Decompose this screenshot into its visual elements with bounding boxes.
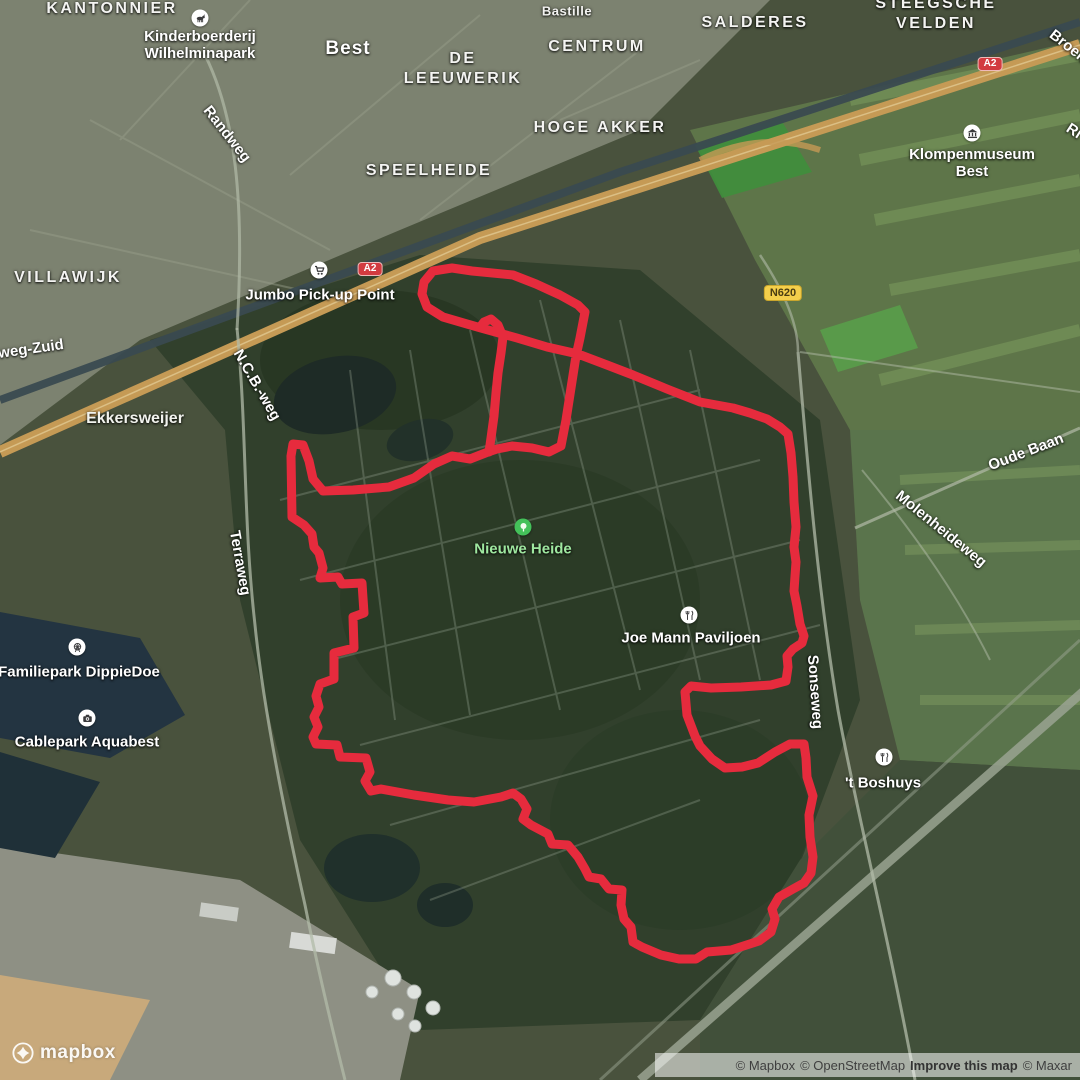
poi-label-joe-mann-paviljoen: Joe Mann Paviljoen bbox=[621, 629, 760, 646]
camera-icon bbox=[81, 712, 93, 724]
poi-marker-klompenmuseum-best[interactable] bbox=[964, 125, 981, 142]
area-label-villawijk: VILLAWIJK bbox=[14, 268, 122, 288]
map-labels-layer: KANTONNIERBestBastilleCENTRUMDELEEUWERIK… bbox=[0, 0, 1080, 1080]
poi-marker-cablepark-aquabest[interactable] bbox=[79, 710, 96, 727]
museum-icon bbox=[966, 127, 978, 139]
mapbox-logo[interactable]: mapbox bbox=[12, 1042, 116, 1064]
area-label-best: Best bbox=[325, 38, 370, 60]
poi-marker-familiepark-dippiedoe[interactable] bbox=[69, 639, 86, 656]
attribution-maxar: © Maxar bbox=[1023, 1058, 1072, 1073]
restaurant-icon bbox=[878, 751, 890, 763]
area-label-de-leeuwerik: DELEEUWERIK bbox=[404, 49, 523, 89]
poi-label-t-boshuys: 't Boshuys bbox=[845, 774, 921, 791]
poi-marker-kinderboerderij-wilhelminapark[interactable] bbox=[192, 10, 209, 27]
area-label-bastille: Bastille bbox=[542, 4, 592, 19]
a2-shield-east: A2 bbox=[978, 57, 1003, 71]
road-label-randweg: Randweg bbox=[200, 102, 254, 165]
poi-label-nieuwe-heide: Nieuwe Heide bbox=[474, 540, 572, 557]
poi-marker-joe-mann-paviljoen[interactable] bbox=[681, 607, 698, 624]
road-label-broek: Broek bbox=[1046, 26, 1080, 66]
road-label-sonseweg: Sonseweg bbox=[804, 654, 826, 729]
map-canvas[interactable]: KANTONNIERBestBastilleCENTRUMDELEEUWERIK… bbox=[0, 0, 1080, 1080]
attribution-mapbox-link[interactable]: © Mapbox bbox=[736, 1058, 795, 1073]
a2-shield-west: A2 bbox=[358, 262, 383, 276]
road-label-ncb-weg: N.C.B.-weg bbox=[230, 346, 284, 423]
poi-label-cablepark-aquabest: Cablepark Aquabest bbox=[15, 733, 160, 750]
area-label-centrum: CENTRUM bbox=[548, 37, 646, 57]
mapbox-wordmark: mapbox bbox=[40, 1042, 116, 1064]
improve-this-map-link[interactable]: Improve this map bbox=[910, 1058, 1018, 1073]
attribution-bar: © Mapbox © OpenStreetMap Improve this ma… bbox=[655, 1053, 1080, 1077]
poi-marker-t-boshuys[interactable] bbox=[876, 749, 893, 766]
attribution-osm-link[interactable]: © OpenStreetMap bbox=[800, 1058, 905, 1073]
road-label-terraweg: Terraweg bbox=[226, 529, 254, 597]
restaurant-icon bbox=[683, 609, 695, 621]
poi-label-klompenmuseum-best: KlompenmuseumBest bbox=[909, 146, 1035, 181]
area-label-speelheide: SPEELHEIDE bbox=[366, 161, 492, 181]
area-label-kantonnier: KANTONNIER bbox=[46, 0, 177, 19]
area-label-salderes: SALDERES bbox=[701, 13, 808, 33]
road-label-molenheideweg: Molenheideweg bbox=[892, 487, 989, 570]
poi-label-jumbo-pickup-point: Jumbo Pick-up Point bbox=[245, 286, 394, 303]
road-label-oude-baan: Oude Baan bbox=[986, 430, 1066, 474]
ferris-wheel-icon bbox=[71, 641, 83, 653]
animal-icon bbox=[194, 12, 206, 24]
poi-label-familiepark-dippiedoe: Familiepark DippieDoe bbox=[0, 663, 160, 680]
area-label-steegsche-velden: STEEGSCHEVELDEN bbox=[875, 0, 996, 34]
mapbox-pin-icon bbox=[12, 1042, 34, 1064]
road-label-ri: Ri bbox=[1063, 120, 1080, 142]
n620-shield: N620 bbox=[764, 285, 802, 301]
poi-marker-nieuwe-heide[interactable] bbox=[515, 519, 532, 536]
cart-icon bbox=[313, 264, 325, 276]
poi-label-kinderboerderij-wilhelminapark: KinderboerderijWilhelminapark bbox=[144, 28, 256, 63]
area-label-hoge-akker: HOGE AKKER bbox=[534, 118, 667, 138]
area-label-ekkersweijer: Ekkersweijer bbox=[86, 410, 184, 428]
poi-marker-jumbo-pickup-point[interactable] bbox=[311, 262, 328, 279]
tree-icon bbox=[517, 521, 529, 533]
road-label-weg-zuid: weg-Zuid bbox=[0, 336, 65, 362]
